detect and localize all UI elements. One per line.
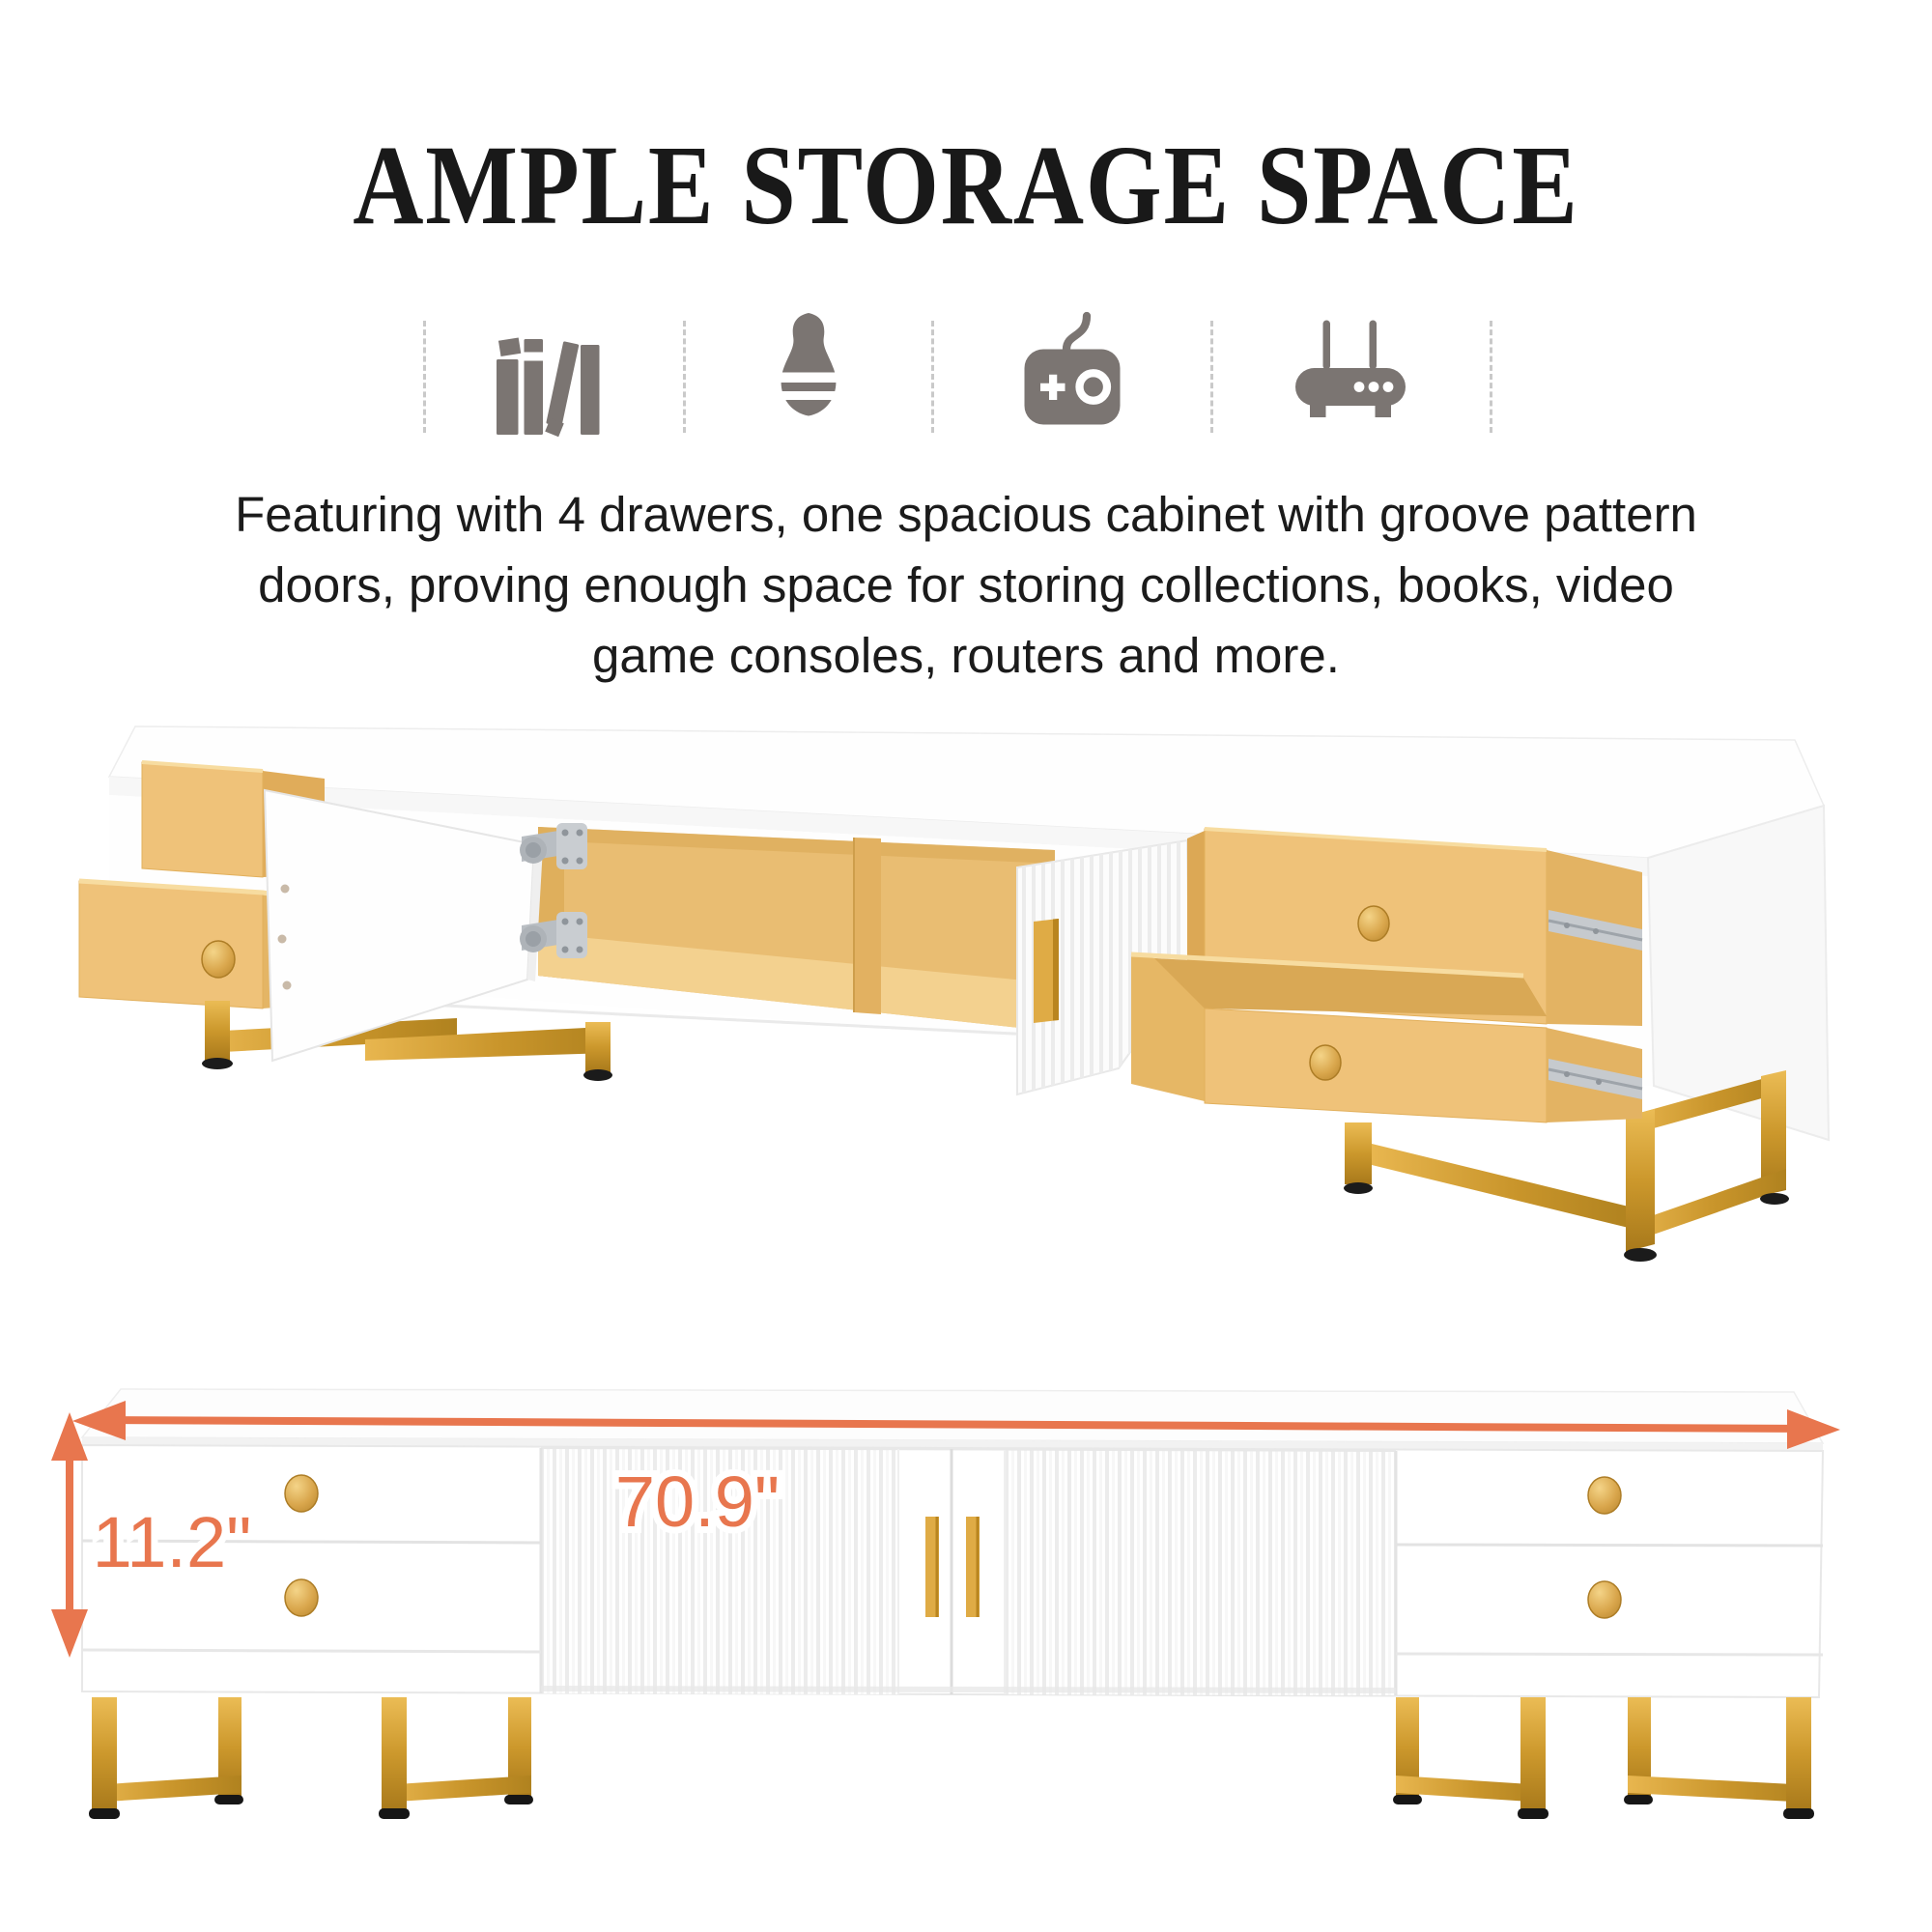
gold-knob — [1310, 1045, 1341, 1080]
leg-foot — [1783, 1808, 1814, 1819]
gold-knob — [1358, 906, 1389, 941]
description-line: game consoles, routers and more. — [0, 620, 1932, 691]
drawer-face — [1205, 1009, 1547, 1122]
leg-foot — [1624, 1248, 1657, 1262]
gold-knob — [285, 1475, 318, 1512]
gold-knob — [1588, 1581, 1621, 1618]
interior-divider — [854, 838, 881, 1014]
feature-router — [1278, 304, 1423, 449]
dashed-divider — [1490, 321, 1492, 433]
description-line: doors, proving enough space for storing … — [0, 550, 1932, 620]
drawer-face — [79, 881, 263, 1009]
gold-knob — [1588, 1477, 1621, 1514]
leg-foot — [214, 1795, 243, 1804]
gold-leg — [379, 1697, 533, 1819]
leg-foot — [1518, 1808, 1548, 1819]
gold-legs-front-view — [89, 1697, 1814, 1819]
books-icon — [482, 304, 627, 449]
gold-leg — [1624, 1697, 1814, 1819]
feature-books — [482, 304, 627, 449]
dashed-divider — [1210, 321, 1213, 433]
drawer-face — [142, 762, 263, 877]
product-photo-dimensions: 70.9" 11.2" — [0, 1348, 1932, 1835]
product-infographic: AMPLE STORAGE SPACE — [0, 0, 1932, 1932]
feature-decor — [736, 304, 881, 449]
product-photo-open — [0, 710, 1932, 1290]
leg-foot — [89, 1808, 120, 1819]
router-icon — [1278, 304, 1423, 449]
vase-icon — [736, 304, 881, 449]
dashed-divider — [423, 321, 426, 433]
leg-foot — [1393, 1795, 1422, 1804]
leg-foot — [504, 1795, 533, 1804]
feature-consoles — [1000, 304, 1145, 449]
leg-foot — [1760, 1193, 1789, 1205]
gold-leg — [89, 1697, 243, 1819]
dashed-divider — [931, 321, 934, 433]
leg-foot — [1624, 1795, 1653, 1804]
description-line: Featuring with 4 drawers, one spacious c… — [0, 479, 1932, 550]
leg-foot — [202, 1058, 233, 1069]
dashed-divider — [683, 321, 686, 433]
leg-foot — [583, 1069, 612, 1081]
dimension-width-label: 70.9" — [615, 1462, 780, 1542]
gold-leg-right — [1624, 1070, 1789, 1262]
gold-leg-middle-right — [1344, 1122, 1633, 1229]
gold-knob — [285, 1579, 318, 1616]
page-title: AMPLE STORAGE SPACE — [135, 120, 1797, 251]
gold-leg — [1393, 1697, 1548, 1819]
dimension-height-label: 11.2" — [93, 1502, 252, 1582]
description: Featuring with 4 drawers, one spacious c… — [0, 479, 1932, 691]
leg-foot — [1344, 1182, 1373, 1194]
leg-foot — [379, 1808, 410, 1819]
gold-knob — [202, 941, 235, 978]
game-controller-icon — [1000, 304, 1145, 449]
